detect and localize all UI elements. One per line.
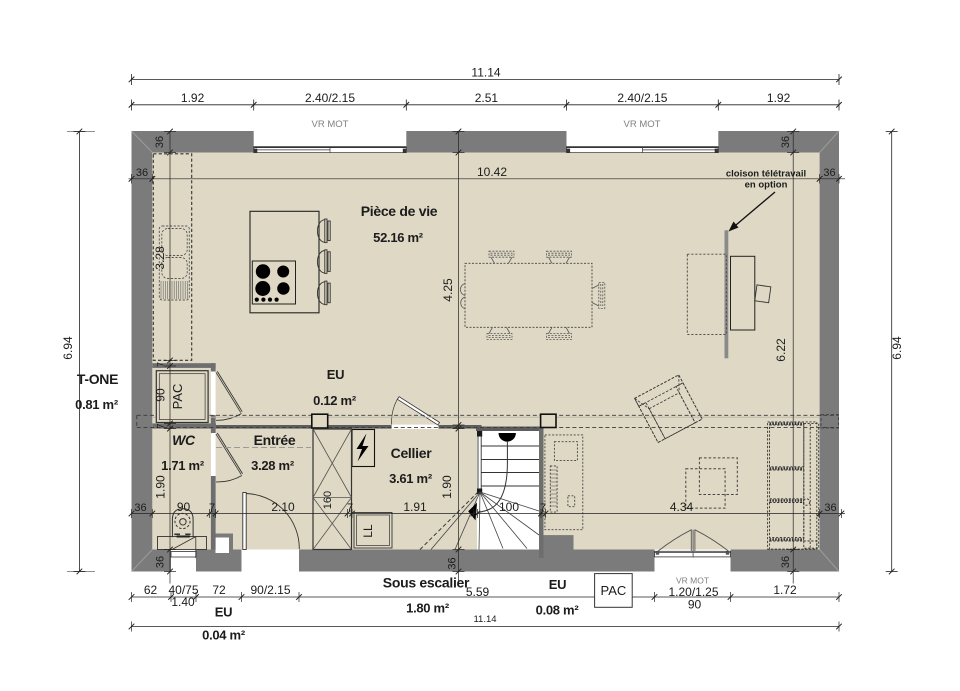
svg-text:3.28: 3.28 xyxy=(153,246,167,270)
svg-text:3.28 m²: 3.28 m² xyxy=(251,458,295,473)
svg-text:36: 36 xyxy=(780,136,792,148)
svg-text:PAC: PAC xyxy=(170,384,185,410)
svg-text:36: 36 xyxy=(823,167,835,179)
svg-text:3.61 m²: 3.61 m² xyxy=(389,471,433,486)
svg-text:36: 36 xyxy=(824,502,836,514)
svg-text:Pièce de vie: Pièce de vie xyxy=(361,203,438,219)
svg-text:EU: EU xyxy=(327,367,344,382)
svg-text:4.34: 4.34 xyxy=(670,500,694,514)
svg-text:7: 7 xyxy=(156,423,166,428)
svg-text:T-ONE: T-ONE xyxy=(77,371,118,387)
svg-text:36: 36 xyxy=(134,502,146,514)
svg-text:62: 62 xyxy=(144,583,158,597)
svg-text:2.51: 2.51 xyxy=(475,91,499,105)
svg-text:LL: LL xyxy=(361,524,375,538)
svg-text:Entrée: Entrée xyxy=(254,432,296,448)
svg-text:1.91: 1.91 xyxy=(403,500,427,514)
svg-text:36: 36 xyxy=(780,556,792,568)
svg-text:52.16 m²: 52.16 m² xyxy=(373,230,424,245)
svg-text:0.81 m²: 0.81 m² xyxy=(75,397,119,412)
svg-text:Sous escalier: Sous escalier xyxy=(383,575,470,591)
svg-text:6.94: 6.94 xyxy=(61,336,75,360)
svg-text:36: 36 xyxy=(136,167,148,179)
svg-text:1.40: 1.40 xyxy=(171,595,195,609)
svg-text:EU: EU xyxy=(549,577,566,592)
svg-text:PAC: PAC xyxy=(601,583,627,598)
svg-text:1.90: 1.90 xyxy=(154,475,168,499)
svg-text:6.22: 6.22 xyxy=(774,338,788,362)
svg-text:36: 36 xyxy=(447,557,459,569)
svg-text:5.59: 5.59 xyxy=(466,585,490,599)
svg-text:160: 160 xyxy=(322,491,334,509)
svg-text:90: 90 xyxy=(688,598,702,612)
svg-text:100: 100 xyxy=(499,500,519,514)
svg-text:1.92: 1.92 xyxy=(767,91,791,105)
svg-text:EU: EU xyxy=(215,605,232,620)
svg-text:1.90: 1.90 xyxy=(440,475,454,499)
svg-text:6.94: 6.94 xyxy=(890,336,904,360)
svg-text:VR MOT: VR MOT xyxy=(676,576,709,586)
svg-text:2.40/2.15: 2.40/2.15 xyxy=(617,91,667,105)
svg-text:en option: en option xyxy=(745,180,788,191)
svg-text:1.71 m²: 1.71 m² xyxy=(161,458,205,473)
svg-text:1.72: 1.72 xyxy=(773,583,797,597)
svg-text:10.42: 10.42 xyxy=(477,165,507,179)
svg-text:VR MOT: VR MOT xyxy=(624,119,661,130)
svg-text:7: 7 xyxy=(156,362,166,367)
svg-text:1.92: 1.92 xyxy=(181,91,205,105)
svg-text:0.04 m²: 0.04 m² xyxy=(202,628,246,643)
svg-text:0.12 m²: 0.12 m² xyxy=(313,393,357,408)
svg-text:36: 36 xyxy=(155,556,167,568)
svg-text:WC: WC xyxy=(172,432,196,448)
svg-text:90/2.15: 90/2.15 xyxy=(250,583,290,597)
svg-text:cloison télétravail: cloison télétravail xyxy=(726,169,806,180)
svg-text:11.14: 11.14 xyxy=(473,614,496,625)
svg-text:11.14: 11.14 xyxy=(471,66,500,80)
svg-text:72: 72 xyxy=(212,583,226,597)
svg-text:4.25: 4.25 xyxy=(441,278,455,302)
svg-text:7: 7 xyxy=(347,502,353,514)
svg-text:2.10: 2.10 xyxy=(271,500,295,514)
svg-text:90: 90 xyxy=(154,388,168,402)
svg-text:1.80 m²: 1.80 m² xyxy=(406,601,450,616)
svg-text:7: 7 xyxy=(209,502,215,514)
svg-text:Cellier: Cellier xyxy=(391,445,433,461)
svg-text:36: 36 xyxy=(154,136,166,148)
svg-text:VR MOT: VR MOT xyxy=(312,119,349,130)
svg-text:90: 90 xyxy=(177,500,191,514)
svg-text:0.08 m²: 0.08 m² xyxy=(536,603,580,618)
svg-text:2.40/2.15: 2.40/2.15 xyxy=(305,91,355,105)
